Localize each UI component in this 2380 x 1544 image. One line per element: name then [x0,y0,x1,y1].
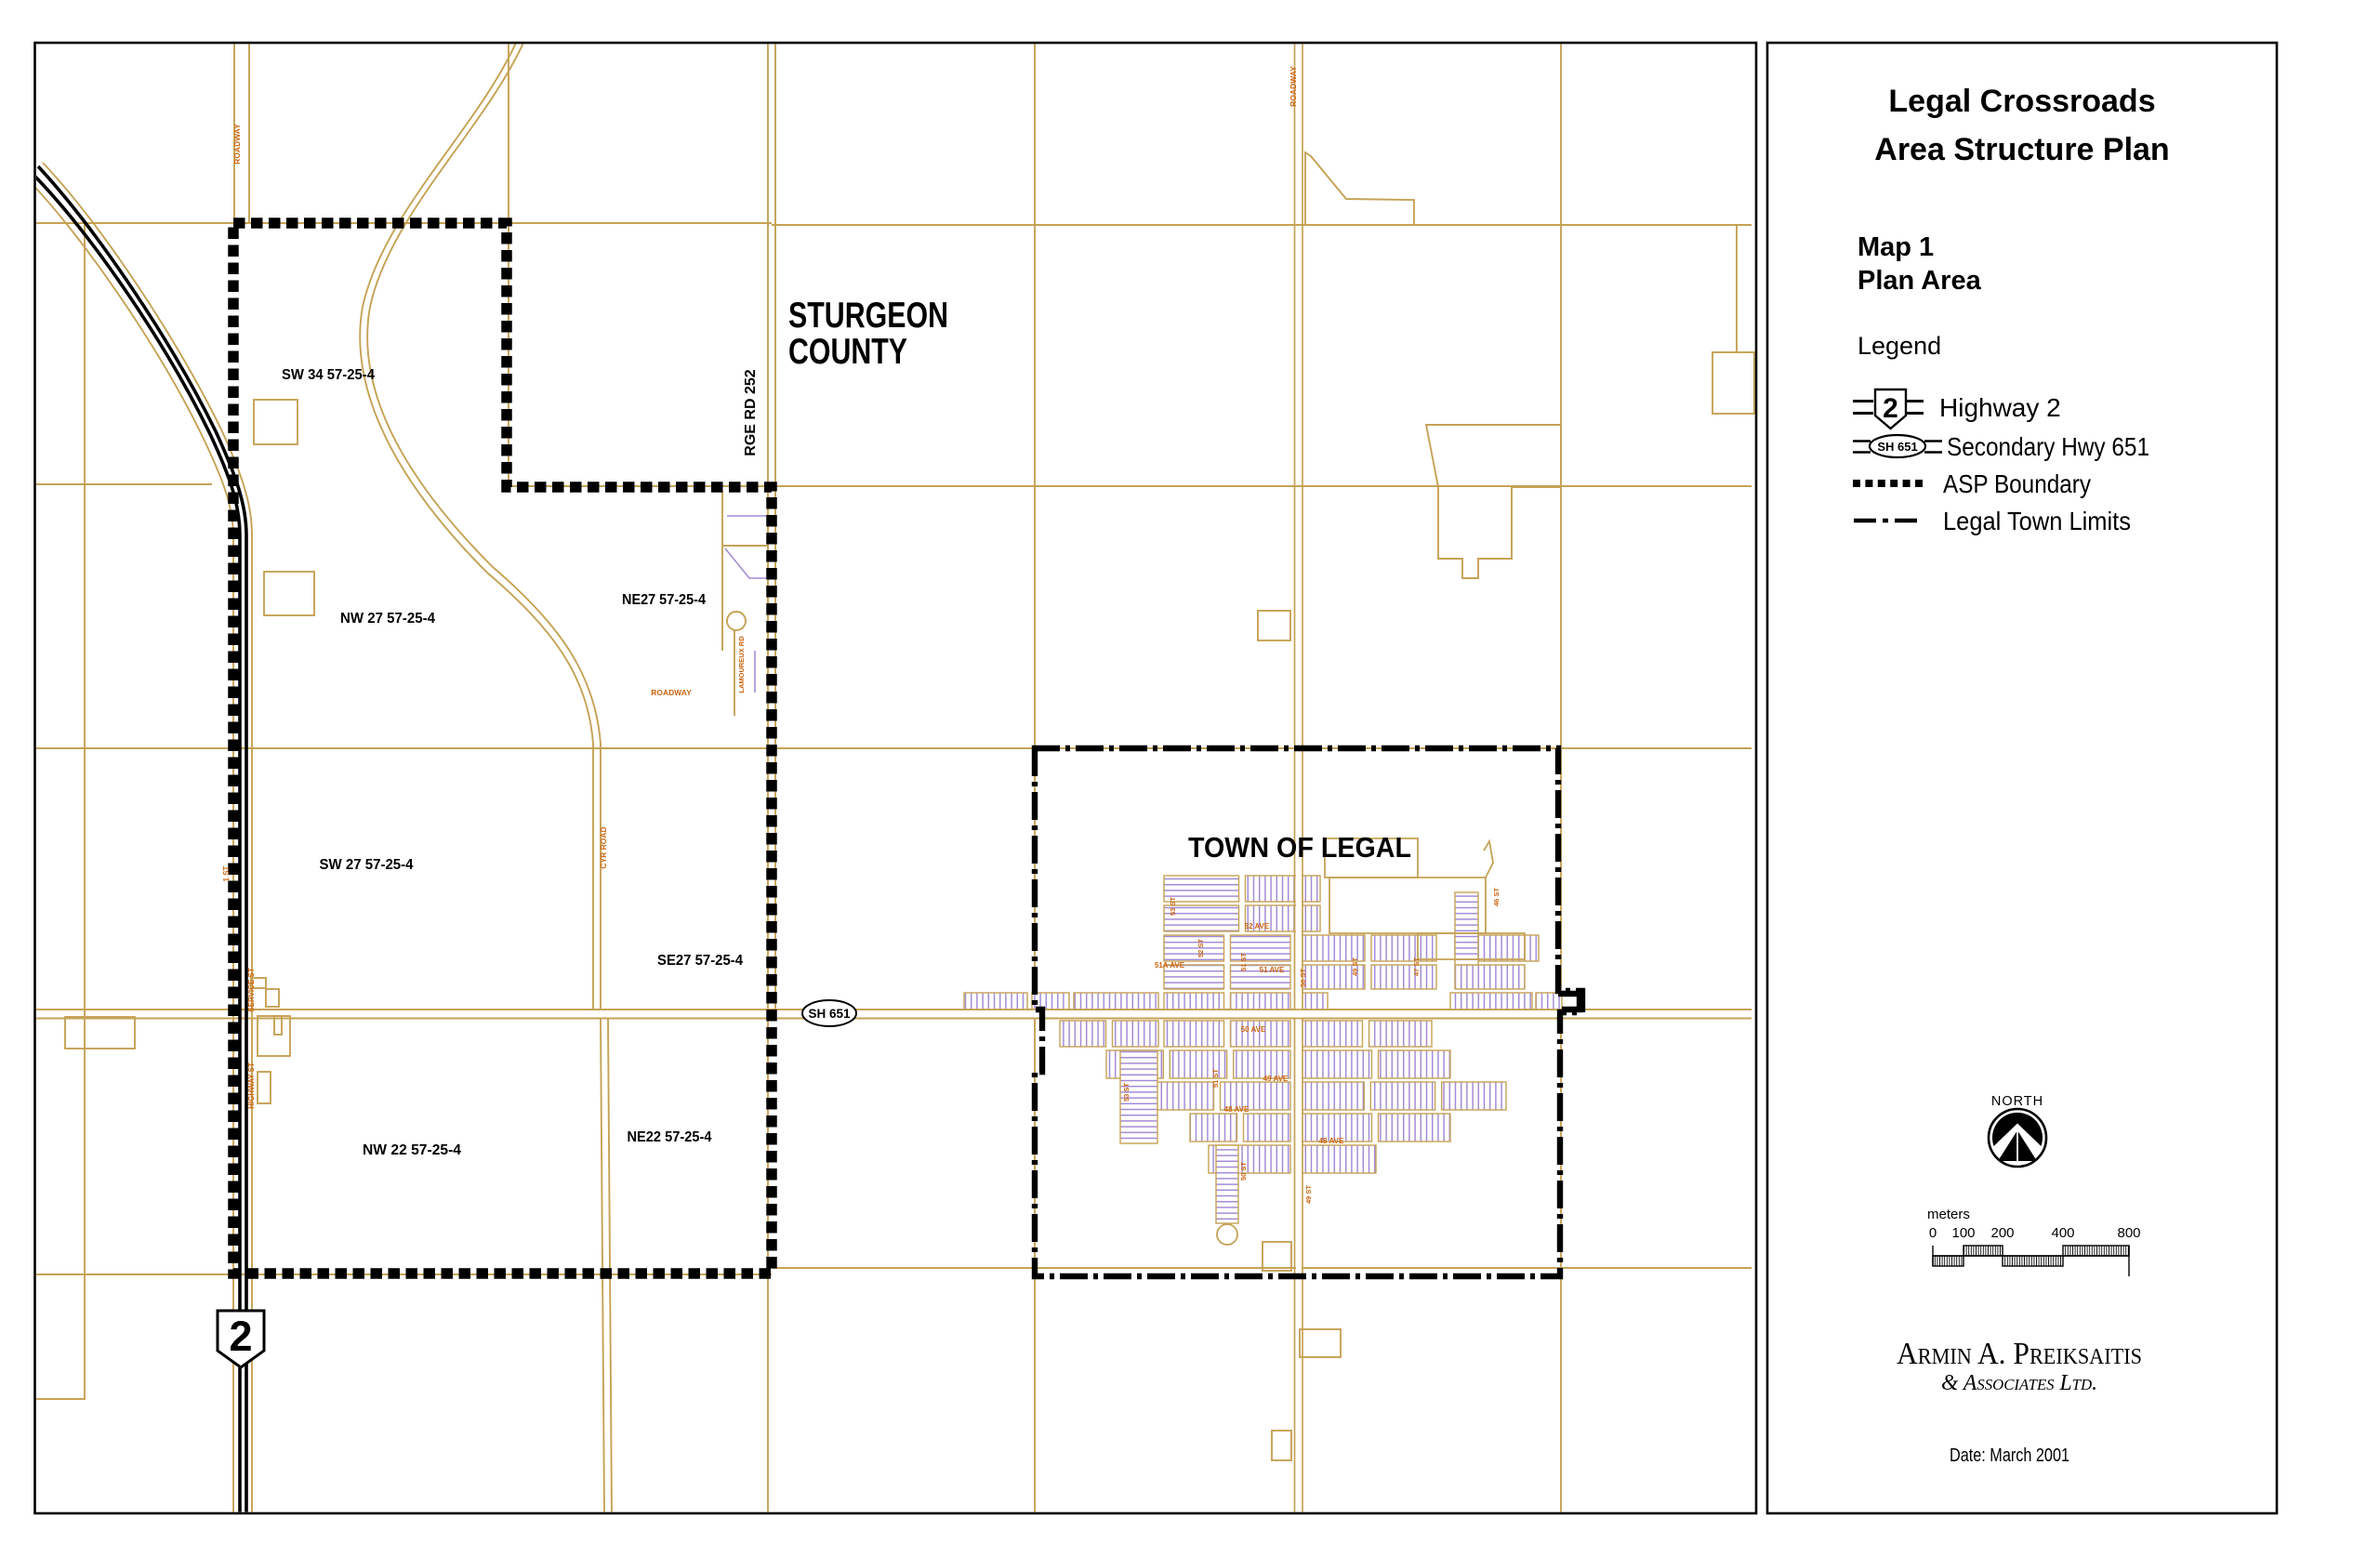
svg-text:COUNTY: COUNTY [788,332,907,372]
svg-text:meters: meters [1927,1207,1970,1222]
svg-text:400: 400 [2051,1225,2074,1241]
svg-text:48 AVE: 48 AVE [1319,1137,1344,1145]
svg-text:STURGEON: STURGEON [788,296,948,336]
svg-text:Legend: Legend [1858,332,1941,360]
svg-text:RGE RD 252: RGE RD 252 [743,369,759,455]
svg-text:Area Structure Plan: Area Structure Plan [1874,132,2169,167]
svg-text:CYR ROAD: CYR ROAD [599,826,608,868]
svg-text:Date: March 2001: Date: March 2001 [1950,1445,2069,1466]
svg-text:Plan Area: Plan Area [1858,266,1982,296]
svg-text:NE27 57-25-4: NE27 57-25-4 [622,592,706,608]
svg-text:SE27 57-25-4: SE27 57-25-4 [657,953,743,969]
svg-text:52 AVE: 52 AVE [1245,922,1270,930]
svg-text:48 AVE: 48 AVE [1224,1105,1249,1114]
svg-text:& Associates Ltd.: & Associates Ltd. [1941,1371,2097,1395]
svg-text:Legal Town Limits: Legal Town Limits [1943,507,2131,535]
svg-text:47 ST: 47 ST [1412,957,1421,976]
svg-text:51A AVE: 51A AVE [1155,961,1185,970]
svg-text:1 ST: 1 ST [222,865,231,881]
svg-text:2: 2 [229,1313,252,1360]
svg-text:52 ST: 52 ST [1197,939,1205,957]
svg-text:50 ST: 50 ST [1239,1162,1248,1181]
svg-text:50 ST: 50 ST [1299,969,1307,987]
svg-text:Armin A. Preiksaitis: Armin A. Preiksaitis [1897,1337,2142,1371]
svg-text:49 ST: 49 ST [1351,957,1359,976]
svg-text:51 ST: 51 ST [1239,953,1248,971]
svg-text:800: 800 [2117,1225,2140,1241]
svg-text:2: 2 [1883,393,1898,424]
svg-text:ROADWAY: ROADWAY [651,688,692,697]
svg-text:49 ST: 49 ST [1304,1185,1313,1204]
svg-text:51 ST: 51 ST [1211,1069,1220,1088]
svg-text:Legal Crossroads: Legal Crossroads [1888,84,2155,119]
svg-text:Highway 2: Highway 2 [1939,393,2061,422]
svg-text:NW 22 57-25-4: NW 22 57-25-4 [363,1142,461,1158]
svg-text:ROADWAY: ROADWAY [232,124,242,165]
svg-text:HIGHWAY ST: HIGHWAY ST [247,1062,256,1109]
svg-text:49 AVE: 49 AVE [1263,1075,1289,1083]
svg-text:NORTH: NORTH [1991,1094,2043,1109]
svg-text:ASP Boundary: ASP Boundary [1943,469,2091,498]
svg-text:100: 100 [1951,1225,1975,1241]
svg-text:NE22 57-25-4: NE22 57-25-4 [628,1129,712,1145]
svg-text:50 AVE: 50 AVE [1241,1025,1266,1034]
svg-text:SW 34 57-25-4: SW 34 57-25-4 [282,367,375,383]
svg-text:NW 27 57-25-4: NW 27 57-25-4 [340,611,435,627]
svg-text:200: 200 [1990,1225,2014,1241]
svg-text:SERVICE ST: SERVICE ST [247,968,256,1012]
svg-text:Map 1: Map 1 [1858,232,1934,262]
svg-text:51 AVE: 51 AVE [1260,966,1285,974]
svg-text:53 ST: 53 ST [1122,1083,1130,1102]
svg-text:Secondary Hwy 651: Secondary Hwy 651 [1947,432,2149,461]
svg-text:TOWN OF LEGAL: TOWN OF LEGAL [1188,831,1411,864]
svg-text:ROADWAY: ROADWAY [1289,66,1298,107]
svg-text:SH 651: SH 651 [808,1007,851,1021]
svg-text:SW 27 57-25-4: SW 27 57-25-4 [320,857,414,873]
svg-text:0: 0 [1929,1225,1937,1241]
svg-text:SH 651: SH 651 [1877,440,1917,454]
svg-text:46 ST: 46 ST [1492,888,1501,906]
svg-text:LAMOUREUX RD: LAMOUREUX RD [737,636,746,693]
svg-text:53 ST: 53 ST [1169,897,1177,916]
